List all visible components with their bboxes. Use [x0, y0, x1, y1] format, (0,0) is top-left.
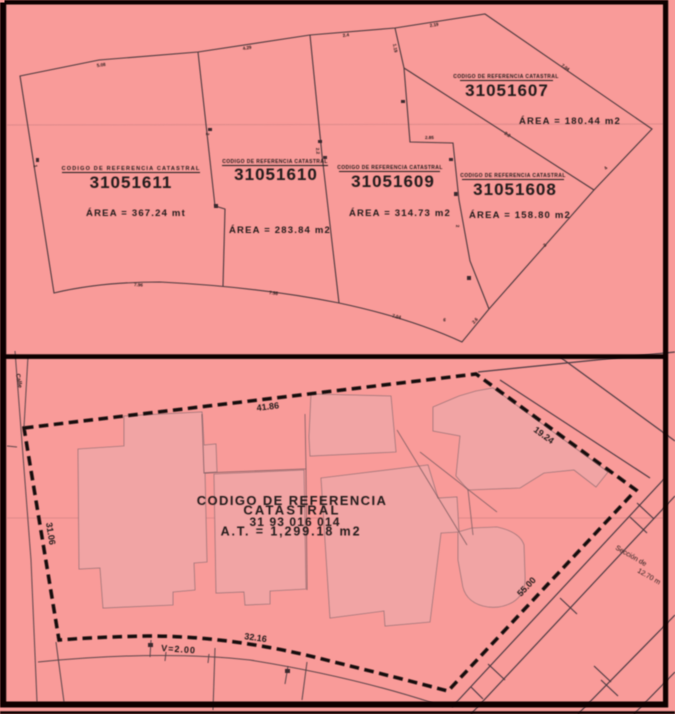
svg-text:2.4: 2.4: [342, 32, 349, 38]
svg-text:31051610: 31051610: [234, 165, 318, 184]
svg-text:31051607: 31051607: [465, 81, 549, 100]
svg-text:A.T. = 1,299.18 m2: A.T. = 1,299.18 m2: [221, 525, 362, 539]
svg-text:CODIGO DE REFERENCIA CATASTRAL: CODIGO DE REFERENCIA CATASTRAL: [337, 165, 443, 171]
svg-text:ÁREA = 367.24 mt: ÁREA = 367.24 mt: [86, 208, 186, 219]
svg-text:ÁREA = 180.44 m2: ÁREA = 180.44 m2: [519, 116, 621, 127]
svg-text:2.2: 2.2: [315, 148, 321, 155]
svg-text:CODIGO DE REFERENCIA CATASTRAL: CODIGO DE REFERENCIA CATASTRAL: [460, 173, 566, 179]
svg-text:ÁREA = 283.84 m2: ÁREA = 283.84 m2: [229, 225, 331, 236]
svg-text:CODIGO DE REFERENCIA CATASTRAL: CODIGO DE REFERENCIA CATASTRAL: [453, 74, 559, 80]
svg-text:CODIGO DE REFERENCIA CATASTRAL: CODIGO DE REFERENCIA CATASTRAL: [62, 166, 201, 172]
svg-text:ÁREA = 158.80 m2: ÁREA = 158.80 m2: [469, 210, 571, 221]
svg-text:2.85: 2.85: [425, 135, 434, 140]
svg-text:31051611: 31051611: [90, 173, 173, 192]
svg-text:31051609: 31051609: [351, 172, 435, 191]
svg-text:7.96: 7.96: [134, 282, 144, 288]
svg-text:31051608: 31051608: [473, 180, 557, 199]
svg-text:ÁREA = 314.73 m2: ÁREA = 314.73 m2: [349, 208, 451, 219]
